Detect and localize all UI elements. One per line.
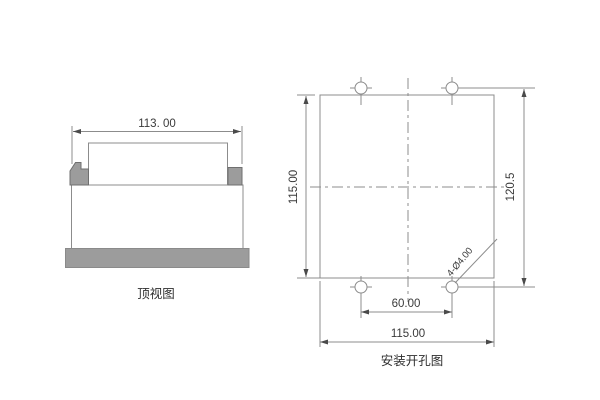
arrow-right-icon bbox=[486, 340, 494, 345]
dimension-hole-pitch-width: 60.00 bbox=[361, 298, 452, 315]
arrow-right-icon bbox=[444, 310, 452, 315]
device-top-cover bbox=[89, 143, 228, 185]
cutout-width-label: 115.00 bbox=[391, 328, 425, 340]
arrow-right-icon bbox=[233, 129, 241, 134]
drawing-canvas: 113. 00 顶视图 bbox=[0, 0, 600, 400]
hole-circle bbox=[446, 82, 458, 94]
hole-circle bbox=[446, 281, 458, 293]
arrow-left-icon bbox=[320, 340, 328, 345]
arrow-left-icon bbox=[361, 310, 369, 315]
arrow-down-icon bbox=[522, 278, 527, 286]
technical-drawing: 113. 00 顶视图 bbox=[0, 0, 600, 400]
mounting-view-caption: 安装开孔图 bbox=[381, 353, 444, 368]
top-view-caption: 顶视图 bbox=[137, 286, 175, 301]
hole-pitch-width-label: 60.00 bbox=[392, 298, 421, 310]
device-body bbox=[72, 185, 244, 249]
hole-pitch-height-label: 120.5 bbox=[505, 173, 517, 202]
arrow-left-icon bbox=[73, 129, 81, 134]
left-mounting-clip bbox=[70, 163, 89, 186]
cutout-height-label: 115.00 bbox=[288, 170, 300, 204]
arrow-up-icon bbox=[304, 96, 309, 104]
top-view: 113. 00 顶视图 bbox=[66, 118, 250, 301]
device-outline bbox=[66, 143, 250, 268]
dimension-cutout-width: 115.00 bbox=[320, 281, 494, 347]
dimension-hole-pitch-height: 120.5 bbox=[505, 89, 527, 286]
hole-circle bbox=[355, 82, 367, 94]
dimension-width-label: 113. 00 bbox=[138, 118, 176, 130]
right-mounting-clip bbox=[228, 168, 242, 186]
arrow-down-icon bbox=[304, 269, 309, 277]
arrow-up-icon bbox=[522, 89, 527, 97]
mounting-hole-view: 115.00 120.5 60.00 bbox=[288, 77, 535, 368]
hole-circle bbox=[355, 281, 367, 293]
front-bezel-bar bbox=[66, 249, 250, 268]
